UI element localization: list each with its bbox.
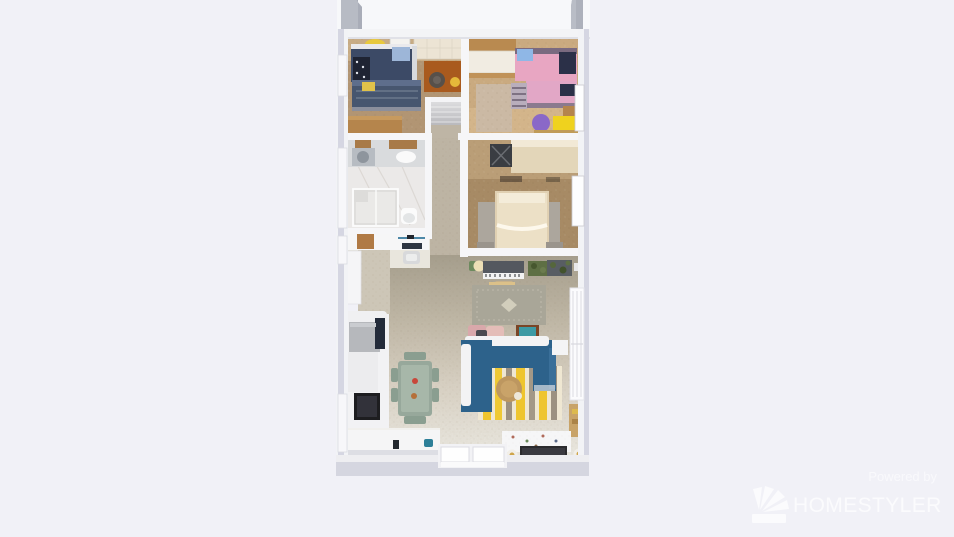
- svg-text:HOMESTYLER: HOMESTYLER: [793, 494, 942, 517]
- svg-text:Powered by: Powered by: [868, 469, 937, 484]
